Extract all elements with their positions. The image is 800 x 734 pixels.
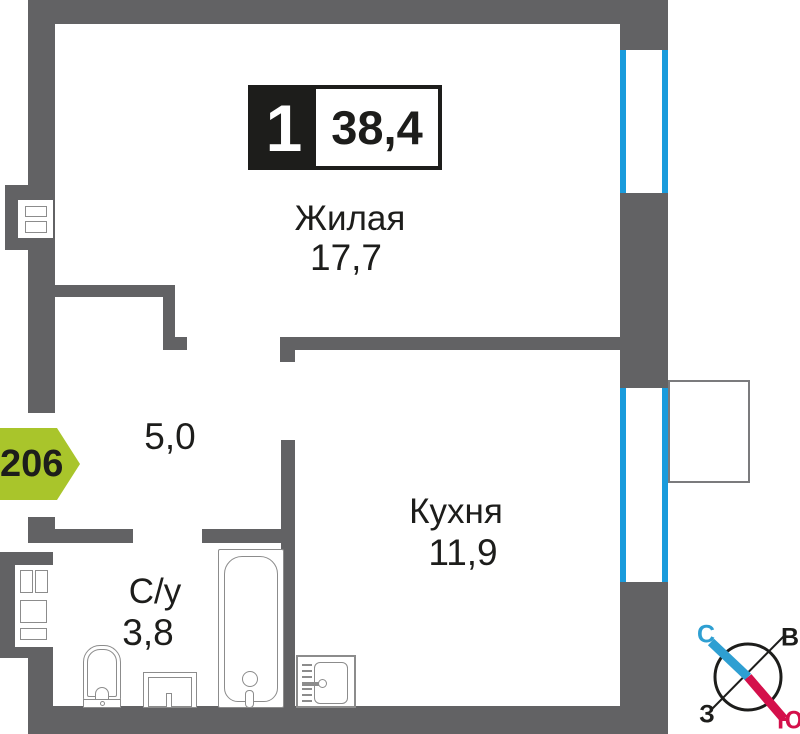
- wall-bottom: [28, 706, 668, 734]
- cabinet-cell: [35, 570, 48, 593]
- room-area-hallway: 5,0: [144, 416, 195, 458]
- compass-west-label: З: [699, 701, 715, 730]
- window-top-icon: [620, 50, 626, 193]
- kitchen-sink-drainer: [302, 700, 312, 702]
- vent-shaft-cell: [25, 221, 47, 233]
- wall-bathroom-top-left: [53, 529, 133, 543]
- wall-right-upper: [620, 0, 668, 50]
- wall-outer-lower-left-side: [0, 552, 16, 658]
- wall-living-kitchen-stub: [280, 337, 295, 362]
- balcony-outline: [668, 380, 750, 483]
- room-area-bathroom: 3,8: [122, 612, 173, 654]
- cabinet-icon: [15, 565, 53, 647]
- kitchen-sink-drainer: [302, 676, 312, 678]
- room-label-living: Жилая: [295, 199, 406, 239]
- total-area: 38,4: [316, 89, 438, 166]
- apartment-number: 206: [0, 443, 58, 486]
- room-area-kitchen: 11,9: [428, 532, 497, 574]
- cabinet-cell: [20, 570, 33, 593]
- kitchen-sink-drainer: [302, 670, 312, 672]
- wall-living-kitchen: [280, 337, 620, 350]
- window-top-icon: [662, 50, 668, 193]
- bathtub-drain: [242, 671, 258, 687]
- apartment-badge: 1 38,4: [248, 85, 442, 170]
- wall-hall-living-stub: [163, 285, 175, 350]
- bathtub-overflow: [245, 690, 254, 708]
- compass-east-label: В: [781, 624, 799, 653]
- room-label-kitchen: Кухня: [409, 492, 503, 532]
- kitchen-sink-drainer: [302, 694, 312, 696]
- rooms-count: 1: [252, 89, 316, 166]
- wall-right-middle: [620, 193, 668, 388]
- wall-hall-living: [55, 285, 175, 297]
- cabinet-cell: [20, 600, 47, 623]
- compass-north-label: С: [697, 621, 715, 650]
- floor-plan: 1 38,4 206 Жилая 17,7 5,0 Кухня 11,9 С/у…: [0, 0, 800, 734]
- window-bottom-icon: [620, 388, 626, 582]
- compass-south-label: Ю: [777, 707, 800, 734]
- compass-icon: С В З Ю: [680, 610, 800, 734]
- kitchen-sink-drainer: [302, 664, 312, 666]
- entrance-arrow: 206: [0, 428, 80, 500]
- vent-shaft-cell: [25, 206, 47, 217]
- cabinet-cell: [20, 628, 47, 640]
- room-label-bathroom: С/у: [129, 572, 182, 612]
- wall-top: [28, 0, 668, 24]
- kitchen-sink-drainer: [302, 688, 312, 690]
- washbasin-pedestal: [166, 693, 172, 708]
- toilet-button: [100, 701, 105, 706]
- wall-left-stub: [28, 517, 55, 543]
- window-bottom-icon: [662, 388, 668, 582]
- wall-hall-living-notch: [175, 337, 187, 350]
- room-area-living: 17,7: [310, 237, 382, 279]
- wall-bathroom-top-right: [202, 529, 283, 543]
- kitchen-sink-tap: [318, 679, 327, 688]
- vent-shaft-icon: [18, 200, 53, 238]
